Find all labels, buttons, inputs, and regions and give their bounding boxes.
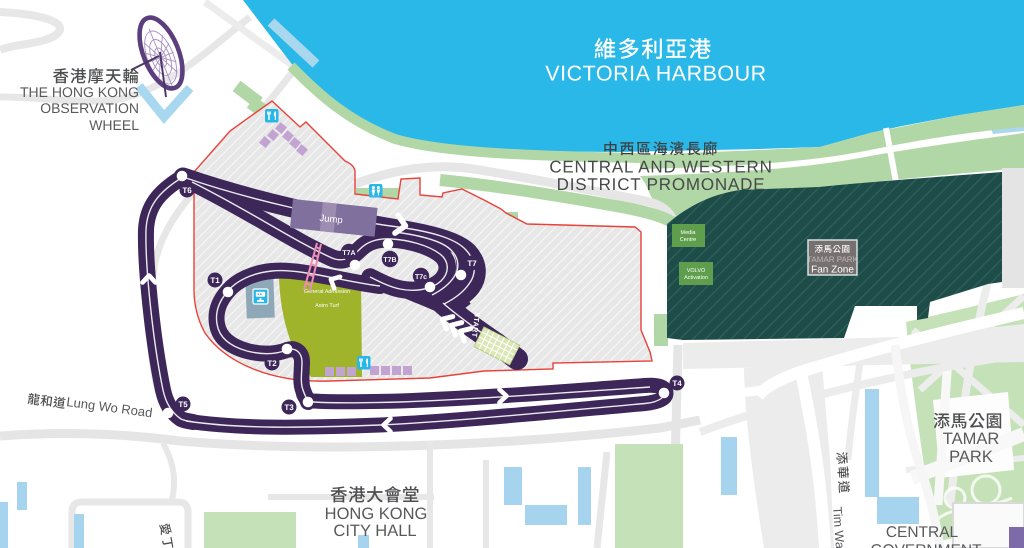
svg-text:THE HONG KONG: THE HONG KONG bbox=[20, 84, 139, 100]
svg-text:Media: Media bbox=[681, 230, 697, 236]
svg-text:PARK: PARK bbox=[949, 448, 993, 466]
svg-text:CENTRAL AND WESTERN: CENTRAL AND WESTERN bbox=[549, 158, 772, 177]
svg-text:T3: T3 bbox=[284, 403, 294, 412]
svg-text:CENTRAL: CENTRAL bbox=[886, 524, 959, 541]
svg-text:GOVERNMENT: GOVERNMENT bbox=[870, 542, 982, 548]
svg-text:T7c: T7c bbox=[415, 274, 427, 281]
svg-text:TAMAR PARK: TAMAR PARK bbox=[807, 255, 858, 264]
svg-text:T1: T1 bbox=[210, 276, 220, 285]
svg-text:DISTRICT PROMONADE: DISTRICT PROMONADE bbox=[557, 175, 766, 194]
svg-text:OBSERVATION: OBSERVATION bbox=[40, 100, 139, 116]
svg-text:TAMAR: TAMAR bbox=[943, 430, 1000, 448]
svg-text:T7A: T7A bbox=[342, 250, 355, 257]
svg-text:T4: T4 bbox=[672, 379, 682, 388]
svg-text:CITY HALL: CITY HALL bbox=[333, 522, 416, 540]
svg-text:Astro Turf: Astro Turf bbox=[315, 303, 339, 309]
svg-text:Fan Zone: Fan Zone bbox=[811, 265, 854, 276]
svg-text:T7: T7 bbox=[467, 259, 477, 268]
svg-text:Centre: Centre bbox=[680, 237, 697, 243]
svg-text:Activation: Activation bbox=[684, 275, 708, 281]
svg-text:HONG KONG: HONG KONG bbox=[325, 505, 428, 523]
svg-text:T5: T5 bbox=[178, 400, 188, 409]
svg-text:T2: T2 bbox=[267, 359, 277, 368]
svg-text:T7B: T7B bbox=[383, 257, 396, 264]
svg-text:VICTORIA HARBOUR: VICTORIA HARBOUR bbox=[545, 62, 766, 86]
svg-text:Tim Wa: Tim Wa bbox=[830, 506, 847, 548]
svg-text:T6: T6 bbox=[182, 186, 192, 195]
svg-text:VOLVO: VOLVO bbox=[687, 268, 706, 274]
svg-text:WHEEL: WHEEL bbox=[89, 117, 139, 133]
